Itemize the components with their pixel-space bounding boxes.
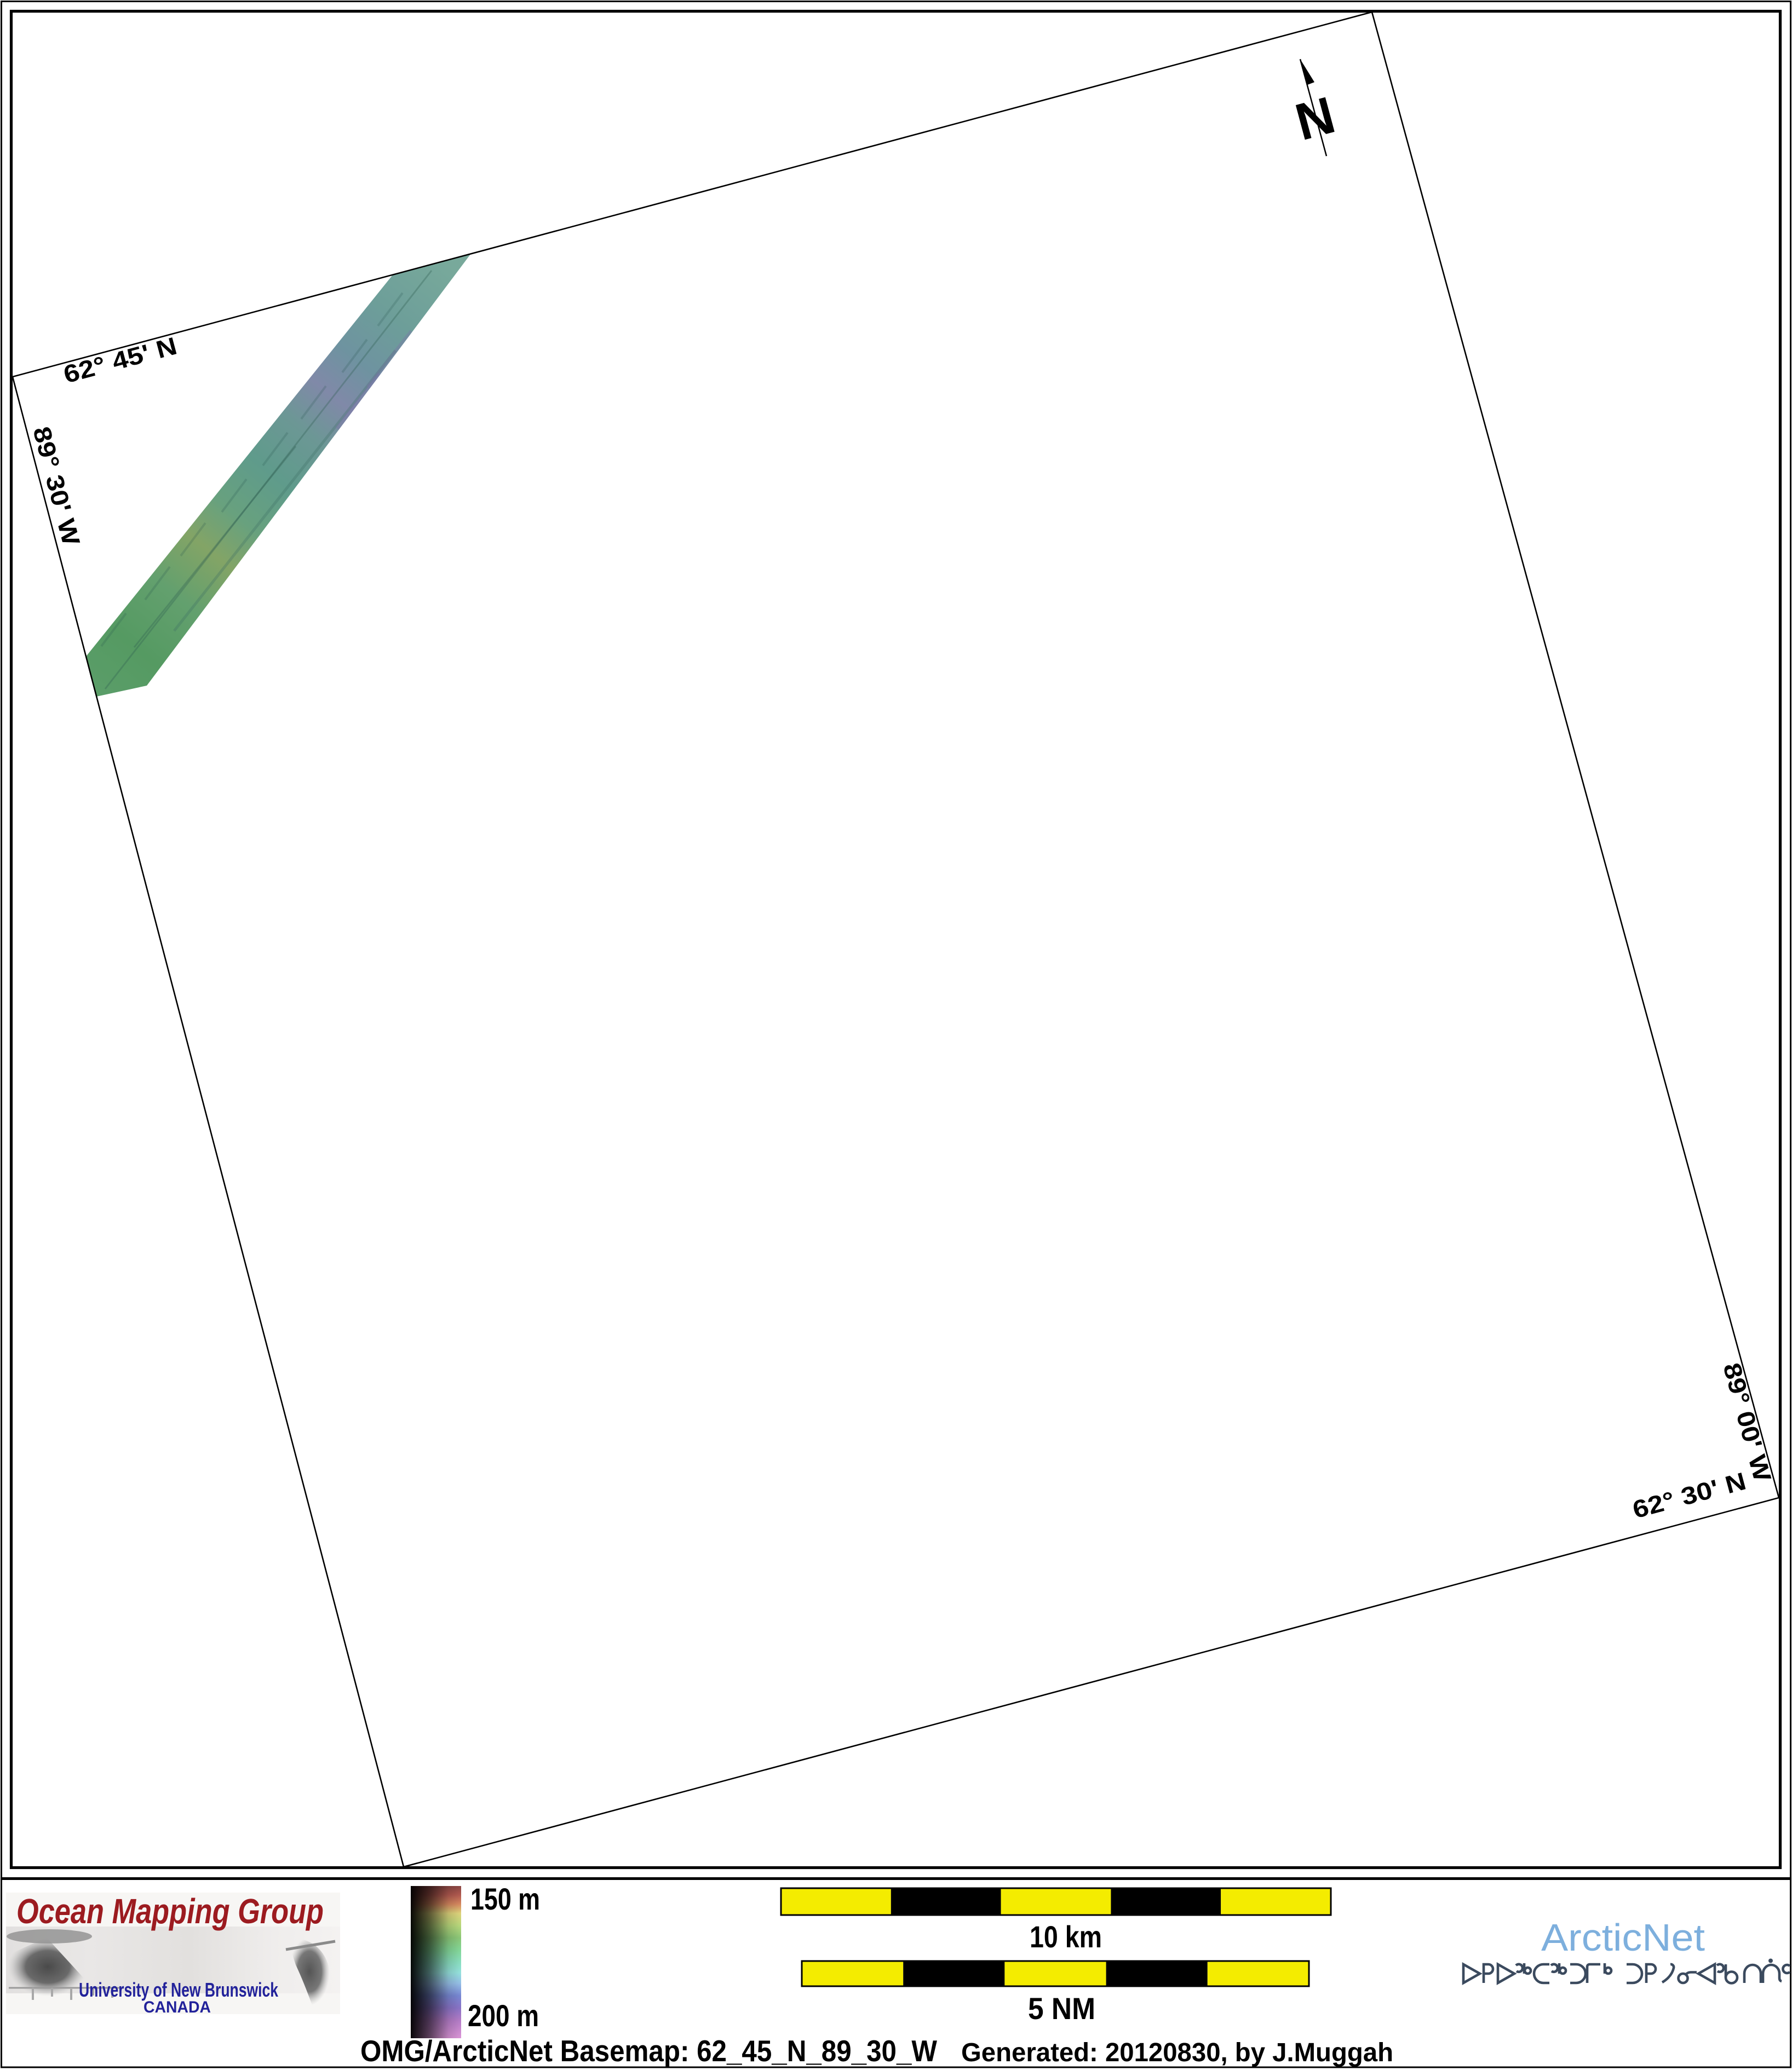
svg-text:10 km: 10 km	[1030, 1919, 1102, 1954]
svg-text:150 m: 150 m	[470, 1882, 540, 1916]
svg-text:CANADA: CANADA	[143, 1998, 211, 2016]
svg-text:OMG/ArcticNet Basemap: 62_45_N: OMG/ArcticNet Basemap: 62_45_N_89_30_W	[360, 2034, 937, 2068]
svg-text:5 NM: 5 NM	[1028, 1991, 1095, 2026]
svg-text:University of New Brunswick: University of New Brunswick	[79, 1979, 279, 2001]
svg-text:ArcticNet: ArcticNet	[1541, 1916, 1705, 1959]
svg-text:200 m: 200 m	[468, 1998, 539, 2033]
svg-text:Ocean Mapping Group: Ocean Mapping Group	[16, 1891, 324, 1931]
svg-text:Generated: 20120830, by J.Mugg: Generated: 20120830, by J.Muggah	[961, 2038, 1393, 2067]
